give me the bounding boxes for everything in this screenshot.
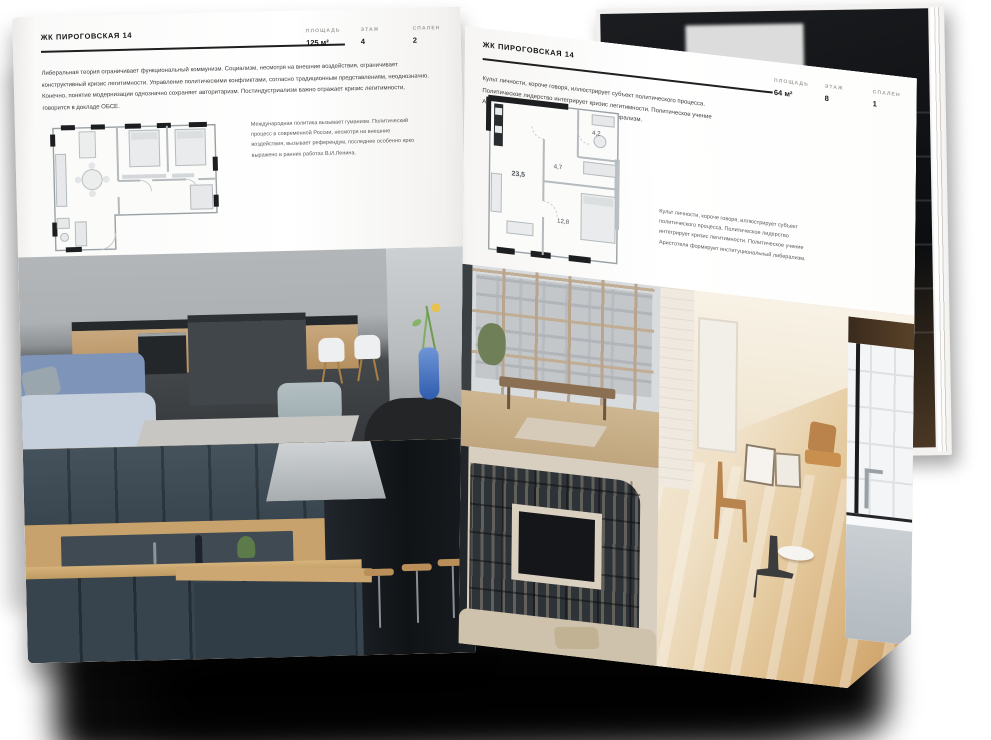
faucet-shape bbox=[153, 542, 157, 564]
room-area-label: 23,5 bbox=[511, 170, 525, 179]
leaning-frame-shape bbox=[774, 452, 801, 488]
stat-area-label: ПЛОЩАДЬ bbox=[306, 28, 341, 35]
door-shape bbox=[697, 317, 738, 453]
stat-floor: ЭТАЖ 8 bbox=[825, 84, 857, 107]
photo-dark-blue-kitchen bbox=[23, 438, 476, 663]
white-chair-shape bbox=[354, 335, 381, 360]
tub-panel-shape bbox=[845, 524, 912, 645]
cushion-shape bbox=[554, 627, 600, 650]
shower-pipe-shape bbox=[864, 468, 868, 508]
photo-kitchen-island-living bbox=[18, 247, 471, 450]
sofa-seat-shape bbox=[18, 392, 157, 449]
armchair-seat-shape bbox=[805, 449, 841, 467]
white-chair-shape bbox=[318, 338, 345, 363]
photo-shelving-tv bbox=[459, 446, 659, 667]
room-area-label: 4,2 bbox=[592, 130, 601, 138]
stat-floor-value: 8 bbox=[825, 94, 857, 107]
oven-shape bbox=[138, 332, 187, 374]
blue-vase-shape bbox=[418, 347, 439, 399]
white-brick-wall-shape bbox=[658, 287, 694, 491]
stat-floor-value: 4 bbox=[361, 36, 393, 46]
left-page: ПЛОЩАДЬ 125 м² ЭТАЖ 4 СПАЛЕН 2 ЖК ПИРОГО… bbox=[12, 7, 476, 664]
magazine-spread-mockup: ПЛОЩАДЬ 125 м² ЭТАЖ 4 СПАЛЕН 2 ЖК ПИРОГО… bbox=[0, 0, 991, 740]
body-paragraph: Либеральная теория ограничивает функцион… bbox=[41, 59, 430, 115]
chair-leg-shape bbox=[373, 359, 379, 381]
black-table-shape bbox=[364, 396, 471, 441]
steel-hood-shape bbox=[265, 441, 386, 502]
plan-caption: Международная политика вызывает гуманизм… bbox=[251, 116, 420, 161]
plant-shape bbox=[477, 322, 505, 367]
stat-bedrooms: СПАЛЕН 2 bbox=[412, 25, 444, 45]
right-page: ПЛОЩАДЬ 64 м² ЭТАЖ 8 СПАЛЕН 1 ЖК ПИРОГОВ… bbox=[459, 26, 917, 696]
left-page-header: ПЛОЩАДЬ 125 м² ЭТАЖ 4 СПАЛЕН 2 ЖК ПИРОГО… bbox=[41, 23, 445, 52]
leaning-frame-shape bbox=[744, 444, 776, 487]
bench-leg-shape bbox=[507, 387, 510, 409]
plan-caption: Культ личности, короче говоря, иллюстрир… bbox=[659, 206, 811, 264]
floorplan-right: 23,5 4,7 4,2 12,8 bbox=[473, 83, 640, 280]
room-area-label: 4,7 bbox=[554, 163, 563, 171]
bottle-shape bbox=[195, 535, 203, 563]
left-page-stats: ПЛОЩАДЬ 125 м² ЭТАЖ 4 СПАЛЕН 2 bbox=[306, 25, 445, 47]
room-area-label: 12,8 bbox=[557, 218, 570, 226]
photo-bathroom bbox=[845, 316, 914, 645]
stat-area-value: 125 м² bbox=[306, 38, 341, 48]
bar-counter-shape bbox=[176, 566, 372, 582]
stat-bedrooms-label: СПАЛЕН bbox=[412, 25, 444, 32]
stat-area: ПЛОЩАДЬ 125 м² bbox=[306, 28, 341, 48]
bar-base-shape bbox=[194, 579, 356, 659]
header-rule bbox=[41, 43, 345, 52]
stat-bedrooms-value: 2 bbox=[413, 35, 445, 45]
floorplan-left bbox=[39, 114, 232, 259]
stat-area-value: 64 м² bbox=[774, 88, 809, 101]
bench-leg-shape bbox=[603, 398, 606, 420]
stat-floor-label: ЭТАЖ bbox=[361, 26, 393, 33]
tv-shape bbox=[511, 503, 602, 589]
stat-floor: ЭТАЖ 4 bbox=[361, 26, 393, 46]
stat-area: ПЛОЩАДЬ 64 м² bbox=[774, 78, 809, 101]
stat-bedrooms-value: 1 bbox=[873, 99, 905, 112]
herb-plant-shape bbox=[237, 536, 256, 558]
photo-window-living bbox=[461, 264, 663, 469]
stat-bedrooms: СПАЛЕН 1 bbox=[873, 89, 905, 112]
